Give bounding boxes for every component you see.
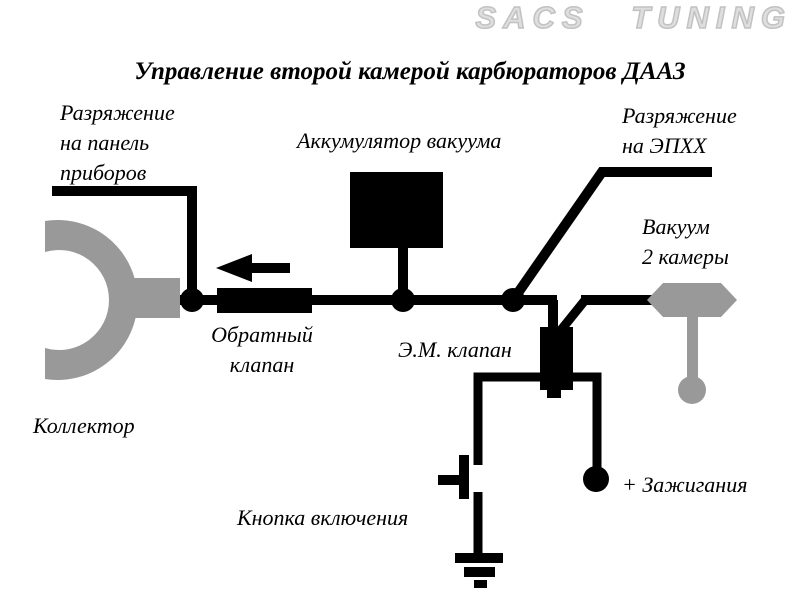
- label-panel-vacuum-line2: на панель: [60, 128, 175, 158]
- diagram-canvas: SACS TUNING Управление второй камерой ка…: [0, 0, 800, 600]
- vacuum-accumulator-shape: [350, 172, 443, 300]
- intake-collector-shape: [45, 220, 180, 380]
- label-check-valve-line2: клапан: [197, 350, 327, 380]
- label-epxx-line1: Разряжение: [622, 101, 737, 131]
- label-chamber-vacuum-line1: Вакуум: [642, 212, 729, 242]
- label-button: Кнопка включения: [237, 503, 408, 533]
- label-check-valve: Обратный клапан: [197, 320, 327, 380]
- label-check-valve-line1: Обратный: [197, 320, 327, 350]
- flow-arrow-icon: [216, 254, 290, 282]
- check-valve-shape: [217, 288, 312, 313]
- valve-to-ignition-wire: [573, 377, 597, 470]
- label-panel-vacuum-line3: приборов: [60, 158, 175, 188]
- label-panel-vacuum: Разряжение на панель приборов: [60, 98, 175, 188]
- ignition-terminal-dot: [583, 466, 609, 492]
- label-em-valve: Э.М. клапан: [398, 335, 512, 365]
- push-button-icon: [438, 455, 469, 499]
- label-collector: Коллектор: [33, 411, 135, 441]
- label-panel-vacuum-line1: Разряжение: [60, 98, 175, 128]
- vacuum-actuator-shape: [647, 283, 737, 404]
- node-dot-epxx: [501, 288, 525, 312]
- valve-to-button-wire: [478, 377, 540, 465]
- node-dot-accumulator: [391, 288, 415, 312]
- ground-icon: [455, 553, 503, 588]
- label-chamber-vacuum-line2: 2 камеры: [642, 242, 729, 272]
- em-valve-shape: [540, 299, 586, 398]
- label-vacuum-accumulator: Аккумулятор вакуума: [297, 126, 501, 156]
- logo-sacs-tuning: SACS TUNING: [475, 0, 792, 36]
- label-chamber-vacuum: Вакуум 2 камеры: [642, 212, 729, 272]
- node-dot-collector: [180, 288, 204, 312]
- label-epxx-vacuum: Разряжение на ЭПХХ: [622, 101, 737, 161]
- label-ignition: + Зажигания: [622, 470, 747, 500]
- page-title: Управление второй камерой карбюраторов Д…: [90, 58, 730, 86]
- label-epxx-line2: на ЭПХХ: [622, 131, 737, 161]
